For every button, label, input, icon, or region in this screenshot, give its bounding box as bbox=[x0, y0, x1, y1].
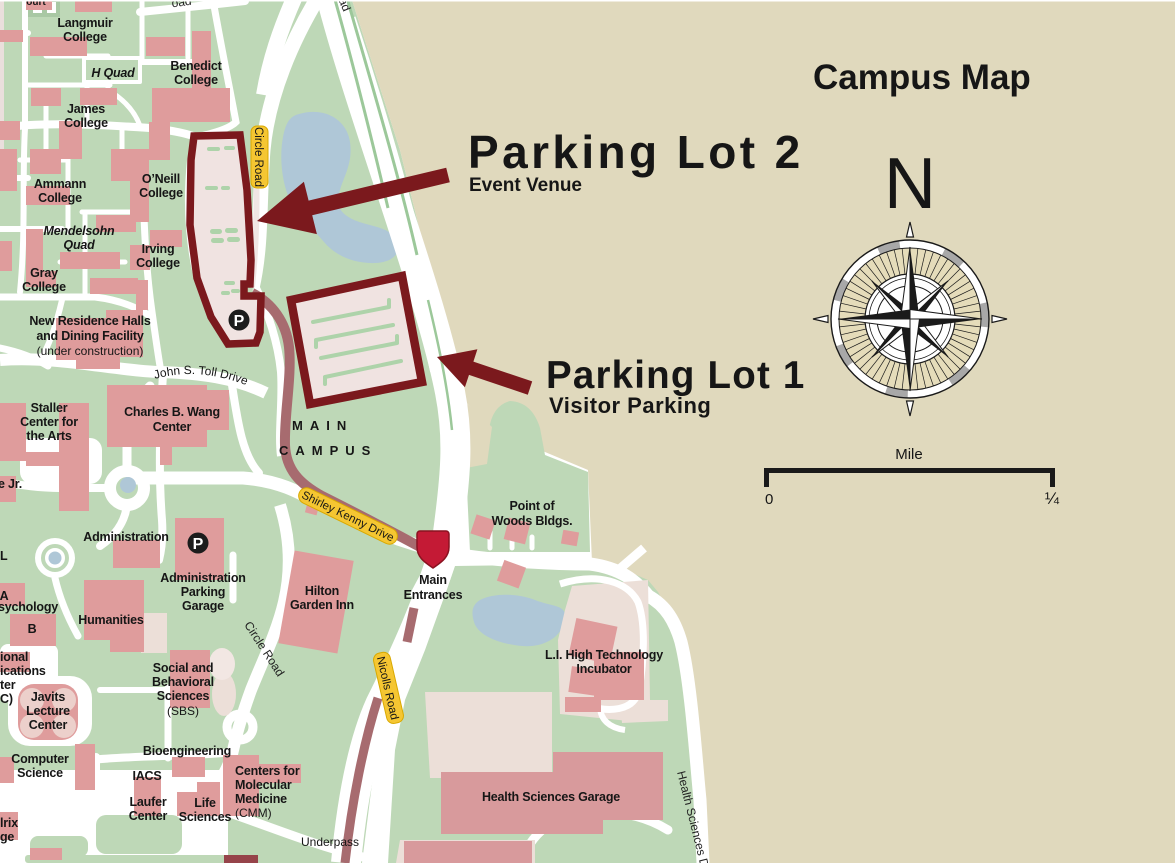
svg-text:Center: Center bbox=[153, 420, 192, 434]
svg-text:Center for: Center for bbox=[20, 415, 78, 429]
svg-text:Quad: Quad bbox=[63, 238, 95, 252]
svg-text:Staller: Staller bbox=[31, 401, 68, 415]
svg-text:Javits: Javits bbox=[31, 690, 65, 704]
svg-text:CAMPUS: CAMPUS bbox=[279, 443, 377, 458]
svg-text:Event Venue: Event Venue bbox=[469, 175, 582, 196]
svg-text:P: P bbox=[234, 313, 245, 330]
svg-text:sychology: sychology bbox=[0, 600, 58, 614]
svg-text:Lecture: Lecture bbox=[26, 704, 70, 718]
svg-text:O’Neill: O’Neill bbox=[142, 172, 180, 186]
svg-text:Life: Life bbox=[194, 796, 216, 810]
svg-text:IACS: IACS bbox=[132, 769, 161, 783]
svg-text:Health Sciences Garage: Health Sciences Garage bbox=[482, 790, 620, 804]
svg-text:ional: ional bbox=[0, 650, 28, 664]
svg-text:Behavioral: Behavioral bbox=[152, 675, 214, 689]
svg-text:Incubator: Incubator bbox=[576, 662, 631, 676]
svg-text:Bioengineering: Bioengineering bbox=[143, 744, 231, 758]
svg-text:James: James bbox=[67, 102, 105, 116]
svg-text:Mendelsohn: Mendelsohn bbox=[44, 224, 115, 238]
svg-text:Circle Road: Circle Road bbox=[252, 127, 264, 187]
svg-text:Sciences: Sciences bbox=[179, 810, 232, 824]
svg-text:Administration: Administration bbox=[83, 530, 168, 544]
svg-text:L: L bbox=[0, 549, 8, 563]
svg-text:Visitor Parking: Visitor Parking bbox=[549, 393, 711, 418]
svg-text:Medicine: Medicine bbox=[235, 792, 287, 806]
svg-text:Humanities: Humanities bbox=[78, 613, 144, 627]
svg-text:Centers for: Centers for bbox=[235, 764, 300, 778]
svg-text:Parking: Parking bbox=[181, 585, 225, 599]
svg-text:Main: Main bbox=[419, 573, 447, 587]
svg-text:L.I. High Technology: L.I. High Technology bbox=[545, 648, 663, 662]
svg-text:College: College bbox=[174, 73, 218, 87]
svg-text:C): C) bbox=[0, 692, 13, 706]
svg-text:N: N bbox=[884, 144, 936, 224]
svg-text:Gray: Gray bbox=[30, 266, 58, 280]
svg-text:MAIN: MAIN bbox=[292, 418, 353, 433]
svg-text:and Dining Facility: and Dining Facility bbox=[36, 329, 144, 343]
svg-text:Social and: Social and bbox=[153, 661, 214, 675]
svg-text:H Quad: H Quad bbox=[91, 66, 135, 80]
svg-text:Woods Bldgs.: Woods Bldgs. bbox=[492, 514, 573, 528]
svg-text:Entrances: Entrances bbox=[404, 588, 463, 602]
svg-text:the Arts: the Arts bbox=[26, 429, 71, 443]
svg-text:Parking Lot 2: Parking Lot 2 bbox=[468, 126, 804, 178]
svg-text:Charles B. Wang: Charles B. Wang bbox=[124, 405, 220, 419]
svg-text:Campus Map: Campus Map bbox=[813, 58, 1031, 97]
svg-text:e Jr.: e Jr. bbox=[0, 477, 22, 491]
svg-text:P: P bbox=[193, 536, 204, 553]
svg-text:Laufer: Laufer bbox=[129, 795, 166, 809]
svg-text:B: B bbox=[28, 622, 37, 636]
svg-text:Garage: Garage bbox=[182, 599, 224, 613]
svg-text:New Residence Halls: New Residence Halls bbox=[29, 314, 151, 328]
svg-text:Hilton: Hilton bbox=[305, 584, 339, 598]
svg-text:Ammann: Ammann bbox=[34, 177, 86, 191]
svg-text:ter: ter bbox=[0, 678, 16, 692]
svg-text:Mile: Mile bbox=[895, 446, 923, 463]
svg-text:Garden Inn: Garden Inn bbox=[290, 598, 354, 612]
svg-text:Irving: Irving bbox=[142, 242, 175, 256]
svg-text:¼: ¼ bbox=[1045, 489, 1060, 508]
svg-text:Center: Center bbox=[29, 718, 68, 732]
svg-text:lrix: lrix bbox=[0, 816, 18, 830]
svg-text:ications: ications bbox=[0, 664, 46, 678]
svg-text:0: 0 bbox=[765, 491, 773, 508]
svg-text:Science: Science bbox=[17, 766, 63, 780]
svg-text:Parking Lot 1: Parking Lot 1 bbox=[546, 354, 805, 397]
svg-text:(SBS): (SBS) bbox=[167, 704, 199, 718]
svg-text:College: College bbox=[64, 116, 108, 130]
svg-text:Administration: Administration bbox=[160, 571, 245, 585]
svg-text:College: College bbox=[38, 191, 82, 205]
svg-text:Point of: Point of bbox=[510, 499, 556, 513]
svg-text:Underpass: Underpass bbox=[301, 835, 359, 849]
svg-text:(under construction): (under construction) bbox=[37, 344, 144, 358]
svg-text:Sciences: Sciences bbox=[157, 689, 210, 703]
svg-text:(CMM): (CMM) bbox=[235, 806, 272, 820]
svg-text:Langmuir: Langmuir bbox=[57, 16, 113, 30]
svg-text:Center: Center bbox=[129, 809, 168, 823]
svg-text:College: College bbox=[139, 186, 183, 200]
svg-text:College: College bbox=[22, 280, 66, 294]
svg-text:ge: ge bbox=[0, 830, 14, 844]
svg-text:Computer: Computer bbox=[11, 752, 69, 766]
svg-text:College: College bbox=[63, 30, 107, 44]
svg-text:Benedict: Benedict bbox=[170, 59, 222, 73]
svg-text:College: College bbox=[136, 256, 180, 270]
svg-text:Molecular: Molecular bbox=[235, 778, 292, 792]
